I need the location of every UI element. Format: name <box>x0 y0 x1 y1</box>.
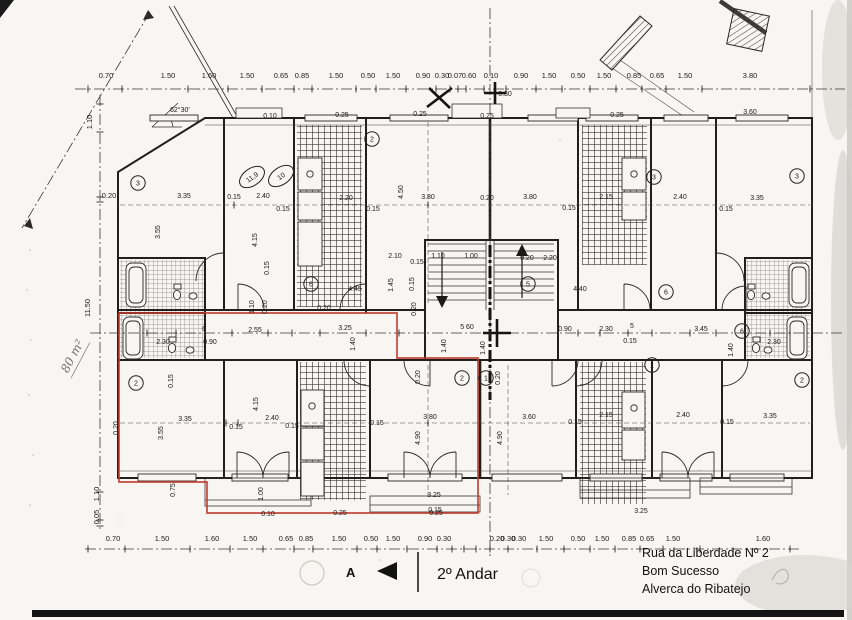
svg-text:2: 2 <box>800 378 804 385</box>
dimension-label: 3.35 <box>750 195 764 202</box>
dimension-label: 0.20 <box>411 302 418 316</box>
dimension-label: 0.20 <box>113 421 120 435</box>
dimension-label: 1.50 <box>678 71 692 80</box>
dimension-label: 2.40 <box>673 194 687 201</box>
floor-plan-canvas: 0.701.501.601.500.650.851.500.501.500.90… <box>0 0 852 620</box>
dimension-label: 1.50 <box>386 71 400 80</box>
dimension-label: 0.15 <box>568 419 582 426</box>
exterior-wall <box>118 118 812 478</box>
dimension-label: 0.07 <box>448 71 462 80</box>
doors <box>196 253 748 478</box>
dimension-label: 1.50 <box>243 534 257 543</box>
svg-text:6: 6 <box>664 290 668 297</box>
dimension-label: 0.15 <box>366 206 380 213</box>
dimension-label: 2.10 <box>388 253 402 260</box>
ramp-structure <box>600 9 812 118</box>
dimension-labels-bottom: 0.701.501.601.500.650.851.500.501.500.90… <box>106 534 770 543</box>
dimension-labels-left: 1.100.2011.501.100.05 <box>83 115 116 524</box>
svg-text:6: 6 <box>740 329 744 336</box>
dimension-label: 0.10 <box>263 113 277 120</box>
dimension-label: 0.90 <box>514 71 528 80</box>
address-line-1: Rua da Liberdade Nº 2 <box>642 546 769 560</box>
section-marker: A <box>346 552 418 592</box>
dimension-label: 4.90 <box>497 431 504 445</box>
dimension-label: 0.75 <box>170 483 177 497</box>
dimension-label: 2.15 <box>599 194 613 201</box>
dimension-label: 0.65 <box>650 71 664 80</box>
dimension-label: 0.25 <box>333 510 347 517</box>
dimension-label: 1.50 <box>539 534 553 543</box>
dimension-label: 0.85 <box>622 534 636 543</box>
dimension-label: 0.85 <box>299 534 313 543</box>
dimension-label: 3.80 <box>743 71 757 80</box>
dimension-label: 0.20 <box>520 255 534 262</box>
dimension-label: 0.20 <box>415 370 422 384</box>
section-arrow-icon <box>377 562 397 580</box>
dimension-label: 0.50 <box>361 71 375 80</box>
dimension-label: 3.60 <box>522 414 536 421</box>
dimension-label: 0.30 <box>437 534 451 543</box>
dimension-label: 0.25 <box>335 112 349 119</box>
dimension-label: 0.10 <box>261 511 275 518</box>
scanned-floor-plan-page: 0.701.501.601.500.650.851.500.501.500.90… <box>0 0 852 620</box>
dimension-label: 3.80 <box>523 194 537 201</box>
room-number-badge: 3 <box>647 170 661 184</box>
dimension-label: 3.25 <box>338 325 352 332</box>
dimension-label: 0.65 <box>279 534 293 543</box>
dimension-label: 0.90 <box>203 339 217 346</box>
dimension-label: 0.25 <box>480 113 494 120</box>
dimension-label: 2.40 <box>256 193 270 200</box>
dimension-label: 0.15 <box>229 424 243 431</box>
svg-text:2: 2 <box>370 137 374 144</box>
dimension-label: 1.50 <box>155 534 169 543</box>
dimension-label: 0.15 <box>264 261 271 275</box>
room-number-badge: 2 <box>795 373 809 387</box>
svg-text:2: 2 <box>134 381 138 388</box>
svg-text:3: 3 <box>652 175 656 182</box>
dimension-label: 4.15 <box>253 397 260 411</box>
dimension-label: 1.50 <box>386 534 400 543</box>
dimension-label: 1.50 <box>595 534 609 543</box>
dimension-label: 2.30 <box>767 339 781 346</box>
dimension-label: 1.50 <box>542 71 556 80</box>
dimension-label: 2.30 <box>599 326 613 333</box>
dimension-label: 4.15 <box>252 233 259 247</box>
dimension-label: 3.25 <box>427 492 441 499</box>
dimension-label: 1.00 <box>258 487 265 501</box>
dimension-label: 2.40 <box>265 415 279 422</box>
dimension-label: 0.15 <box>285 423 299 430</box>
dimension-label: 2.20 <box>339 195 353 202</box>
toilet <box>747 284 755 300</box>
bathtub <box>789 263 809 307</box>
sink <box>186 347 194 353</box>
dimension-label: 0.30 <box>498 91 512 98</box>
dimension-label: 0.65 <box>640 534 654 543</box>
dimension-label: 0.30 <box>512 534 526 543</box>
dimension-label: 0.25 <box>413 111 427 118</box>
dimension-label: 1.10 <box>92 487 101 501</box>
floor-title: 2º Andar <box>437 566 499 583</box>
dimension-label: 0.20 <box>262 300 269 314</box>
room-number-badge: 3 <box>790 169 804 183</box>
room-number-badge: 6 <box>659 285 673 299</box>
svg-text:5: 5 <box>526 282 530 289</box>
dimension-label: 0.15 <box>276 206 290 213</box>
dimension-label: 0.90 <box>416 71 430 80</box>
svg-text:2: 2 <box>460 376 464 383</box>
dimension-label: 3.80 <box>423 414 437 421</box>
sink <box>764 347 772 353</box>
handwritten-area-note: 80 m² <box>57 335 90 378</box>
room-number-badge: 3 <box>131 176 145 190</box>
svg-text:1: 1 <box>650 363 654 370</box>
dimension-label: 1.50 <box>332 534 346 543</box>
dimension-label: 1.10 <box>431 253 445 260</box>
dimension-label: 0.15 <box>168 374 175 388</box>
dimension-label: 11.50 <box>83 299 92 317</box>
svg-text:10: 10 <box>276 172 286 182</box>
dimension-label: 0.90 <box>418 534 432 543</box>
dimension-label: 0.05 <box>92 510 101 524</box>
dimension-label: 5 60 <box>460 324 474 331</box>
dimension-label: 1.60 <box>205 534 219 543</box>
dimension-label: 1.60 <box>756 534 770 543</box>
dimension-label: 0.10 <box>484 71 498 80</box>
bathtub <box>787 317 807 359</box>
dimension-label: 1.50 <box>329 71 343 80</box>
dimension-label: 0.60 <box>462 71 476 80</box>
address-line-3: Alverca do Ribatejo <box>642 582 750 596</box>
dimension-label: 0.50 <box>364 534 378 543</box>
dimension-label: 3.55 <box>155 225 162 239</box>
dimension-label: 3.25 <box>634 508 648 515</box>
dimension-label: 1.40 <box>441 339 448 353</box>
scan-edge-bar <box>32 610 844 617</box>
dimension-label: 0.20 <box>102 191 116 200</box>
dimension-label: 0.70 <box>106 534 120 543</box>
dimension-label: 1.50 <box>666 534 680 543</box>
dimension-label: 1.40 <box>480 341 487 355</box>
dimension-label: 2.55 <box>248 327 262 334</box>
dimension-label: 4.50 <box>398 185 405 199</box>
dimension-label: 3.35 <box>178 416 192 423</box>
room-number-badge: 2 <box>129 376 143 390</box>
dimension-label: 4.90 <box>415 431 422 445</box>
dimension-label: 0.15 <box>719 206 733 213</box>
dimension-label: 0.65 <box>274 71 288 80</box>
dimension-label: 0.20 <box>480 195 494 202</box>
dimension-label: 2.40 <box>676 412 690 419</box>
dimension-label: 1.50 <box>161 71 175 80</box>
dimension-label: 0.15 <box>623 338 637 345</box>
dimension-label: 1.50 <box>240 71 254 80</box>
sink <box>189 293 197 299</box>
bathtub <box>123 317 143 359</box>
stamp-circle <box>300 561 324 585</box>
room-area-ellipse: 11,9 <box>236 162 269 192</box>
dimension-label: 0.85 <box>627 71 641 80</box>
dimension-label: 0.15 <box>409 277 416 291</box>
dimension-label: 0.50 <box>571 534 585 543</box>
svg-text:3: 3 <box>795 174 799 181</box>
toilet <box>173 284 181 300</box>
dimension-label: 1.50 <box>597 71 611 80</box>
dimension-label: 1.00 <box>464 253 478 260</box>
dimension-label: 3.60 <box>743 109 757 116</box>
dimension-label: 1.45 <box>388 278 395 292</box>
dimension-label: 4.40 <box>573 286 587 293</box>
dimension-label: 5 <box>630 323 634 330</box>
balconies <box>205 478 792 512</box>
dimension-label: 0.15 <box>227 194 241 201</box>
dimension-label: 0.90 <box>558 326 572 333</box>
dimension-label: 0.15 <box>562 205 576 212</box>
walls <box>118 118 812 478</box>
dimension-label: 3.55 <box>158 426 165 440</box>
dimension-labels-top: 0.701.501.601.500.650.851.500.501.500.90… <box>99 71 757 80</box>
dimension-label: 0.50 <box>571 71 585 80</box>
dimension-label: 3.45 <box>694 326 708 333</box>
dimension-label: 1.40 <box>350 337 357 351</box>
stair-down-arrow <box>436 296 448 308</box>
dimension-label: 0.15 <box>720 419 734 426</box>
stamp-circle-faint <box>522 569 540 587</box>
svg-text:A: A <box>346 565 356 580</box>
dimension-label: 3.80 <box>421 194 435 201</box>
dimension-label: 4.45 <box>348 286 362 293</box>
dimension-label: 0.20 <box>317 305 331 312</box>
dimension-label: 2.15 <box>599 412 613 419</box>
room-area-ellipse: 10 <box>265 161 298 191</box>
room-area-ellipses: 11,910 <box>236 161 298 192</box>
dimension-label: 1.40 <box>728 343 735 357</box>
angle-annotation: 62°30' <box>170 106 190 114</box>
section-cross <box>427 88 452 108</box>
dimension-label: 0.20 <box>495 371 502 385</box>
dimension-label: 1.60 <box>202 71 216 80</box>
dimension-label: 2.30 <box>156 339 170 346</box>
dimension-label: 0.70 <box>99 71 113 80</box>
svg-text:1: 1 <box>484 376 488 383</box>
dimension-label: 3.35 <box>763 413 777 420</box>
dimension-label: 3.35 <box>177 193 191 200</box>
bathtub <box>126 263 146 307</box>
dimension-label: 1.10 <box>249 300 256 314</box>
dimension-label: 6 <box>202 326 206 333</box>
dimension-label: 0.15 <box>370 420 384 427</box>
toilet <box>752 337 760 353</box>
svg-text:3: 3 <box>136 181 140 188</box>
sink <box>762 293 770 299</box>
room-number-badges: 3233656622112 <box>129 132 809 390</box>
svg-text:11,9: 11,9 <box>245 171 260 184</box>
room-number-badge: 2 <box>455 371 469 385</box>
dimension-label: 0.25 <box>429 510 443 517</box>
svg-text:6: 6 <box>309 282 313 289</box>
address-line-2: Bom Sucesso <box>642 564 719 578</box>
dimension-label: 2.20 <box>543 255 557 262</box>
interior-walls <box>118 118 812 478</box>
dimension-label: 0.15 <box>410 259 424 266</box>
dimension-label: 0.85 <box>295 71 309 80</box>
dimension-label: 1.10 <box>85 115 94 129</box>
dimension-label: 0.25 <box>610 112 624 119</box>
